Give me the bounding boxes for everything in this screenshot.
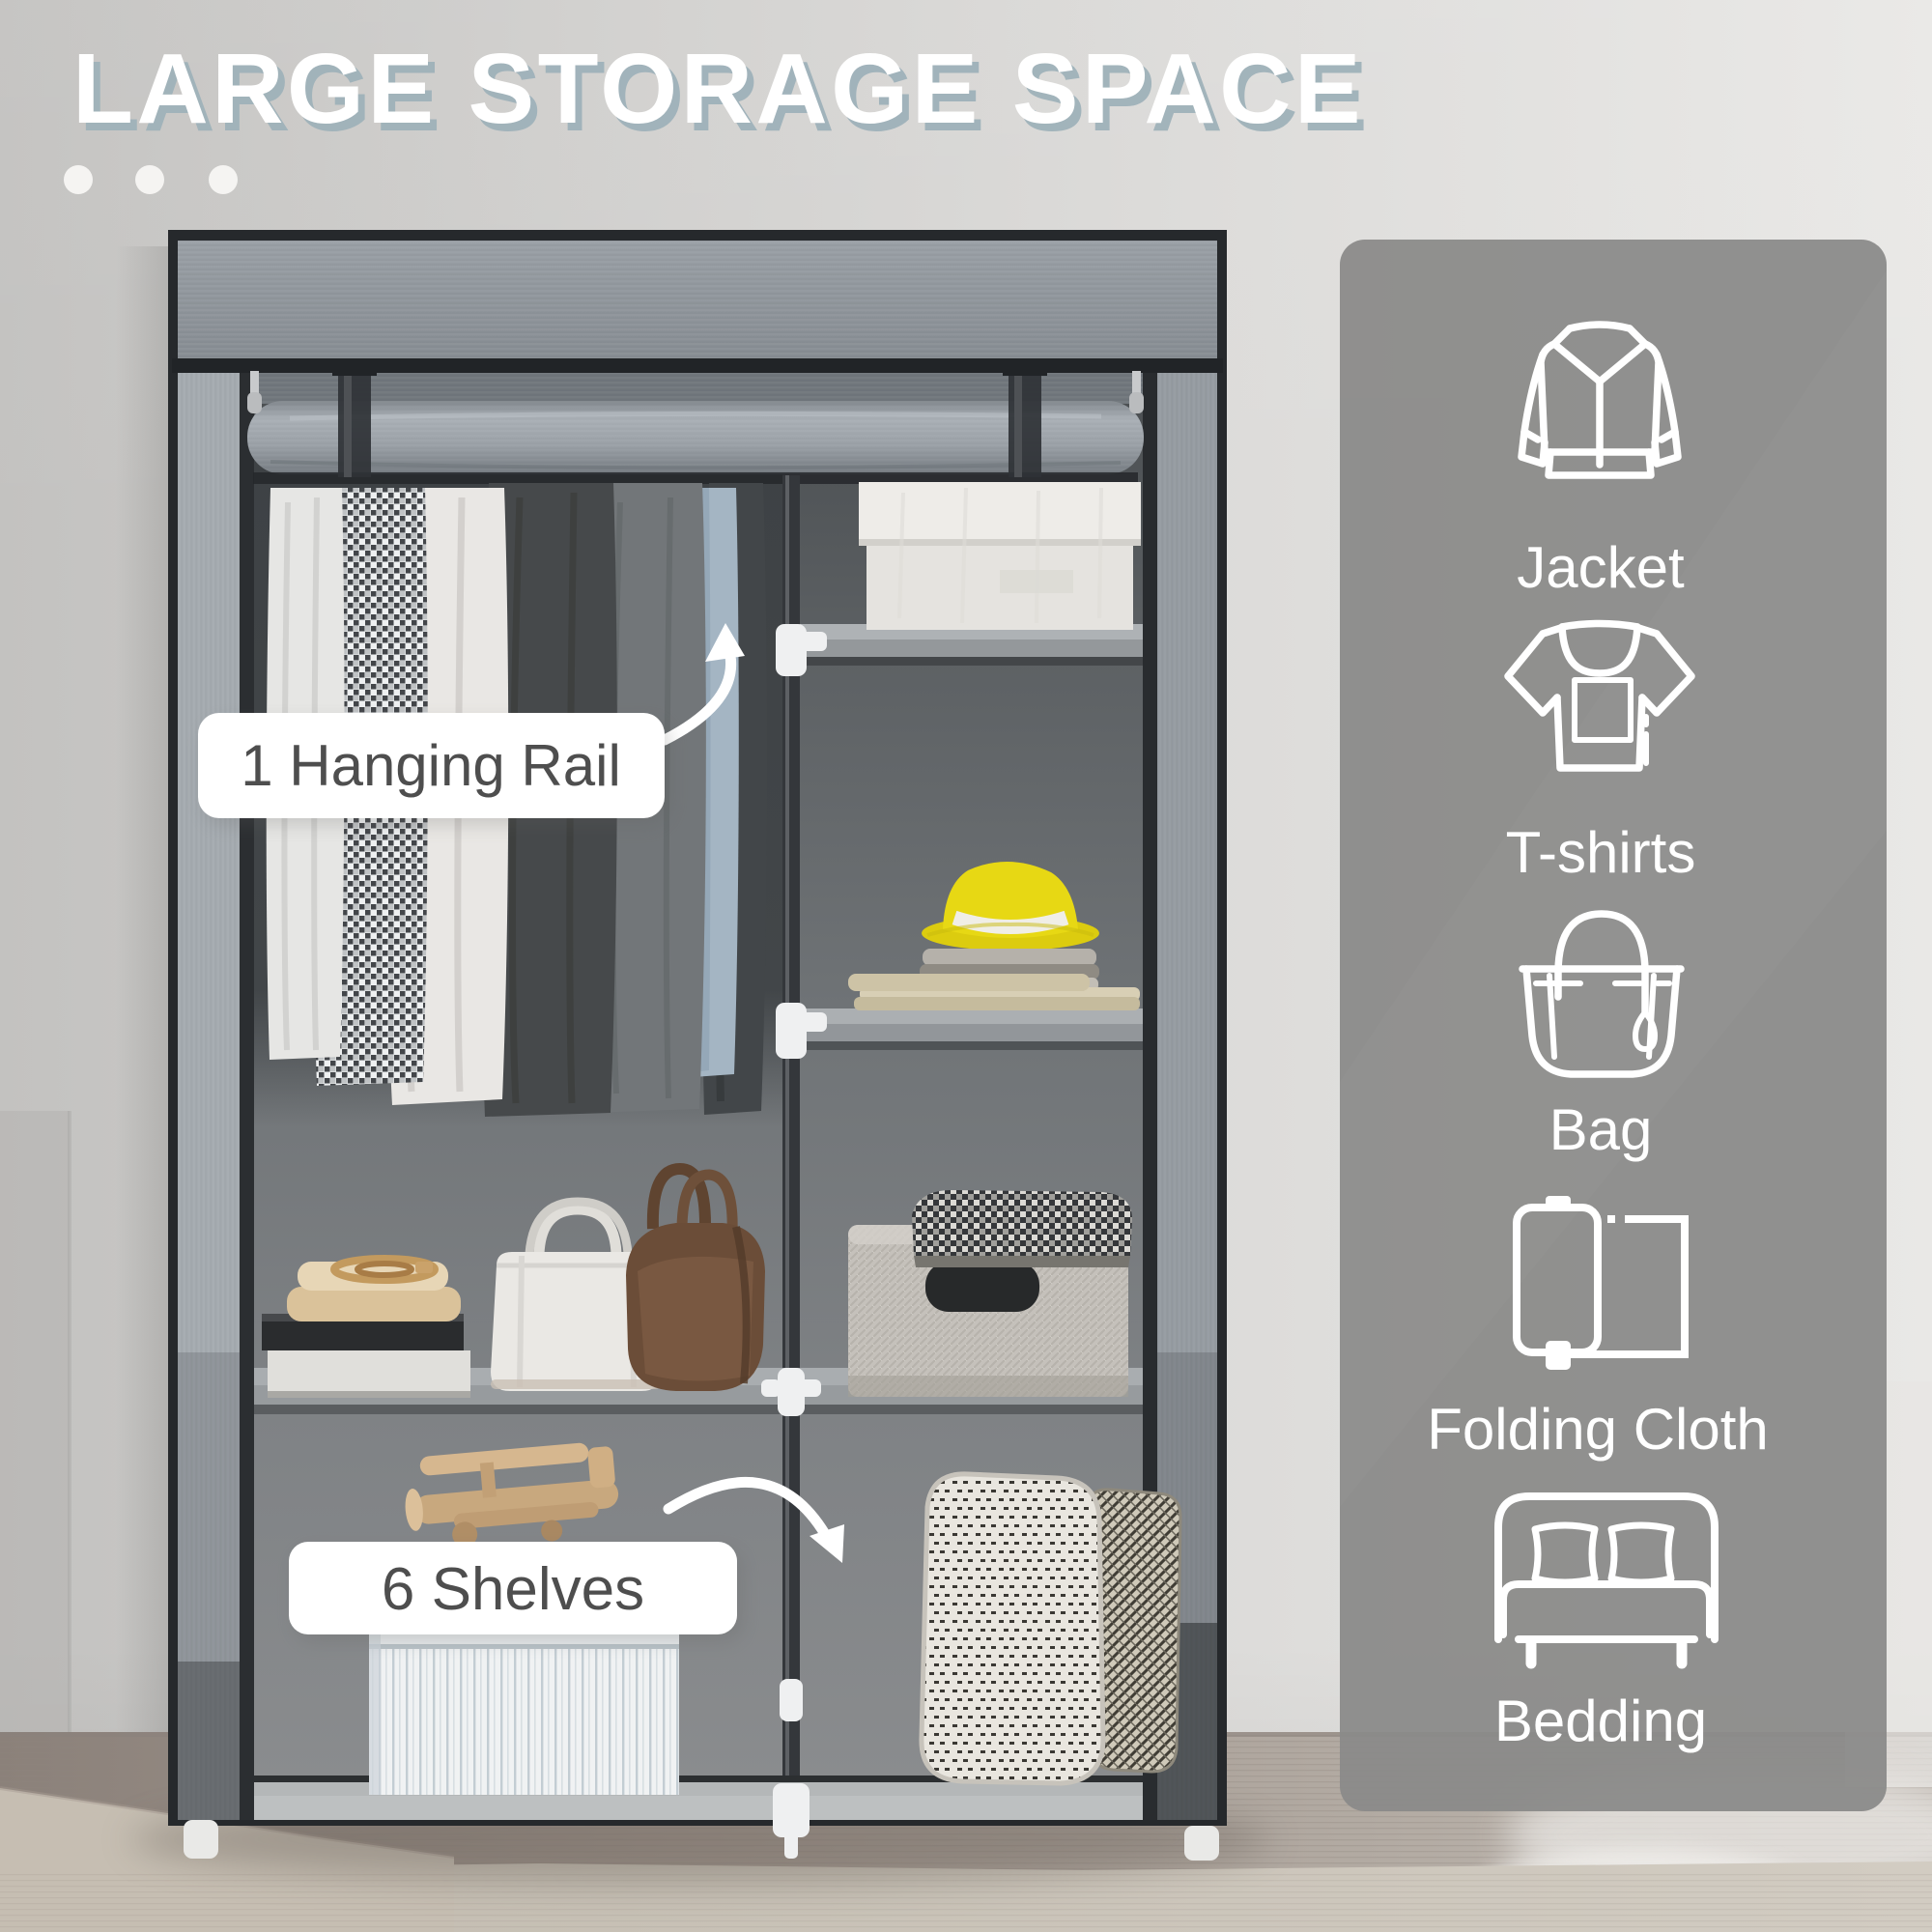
svg-text:1 Hanging Rail: 1 Hanging Rail [241, 733, 621, 798]
svg-text:T-shirts: T-shirts [1506, 820, 1696, 885]
svg-text:Folding Cloth: Folding Cloth [1427, 1397, 1769, 1462]
svg-text:Bedding: Bedding [1494, 1689, 1707, 1753]
svg-text:Jacket: Jacket [1517, 535, 1685, 600]
svg-text:6 Shelves: 6 Shelves [382, 1556, 644, 1623]
svg-text:Bag: Bag [1549, 1097, 1653, 1162]
svg-text:LARGE STORAGE SPACE: LARGE STORAGE SPACE [72, 33, 1364, 144]
